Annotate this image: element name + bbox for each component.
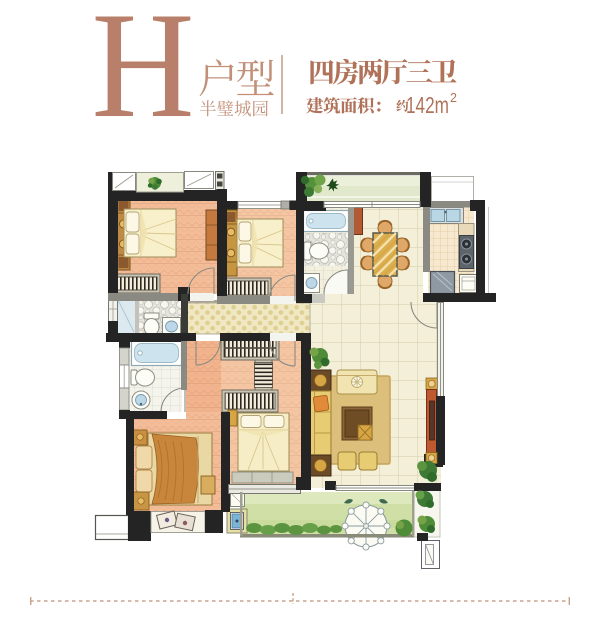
svg-text:2: 2: [450, 91, 457, 105]
svg-text:H: H: [92, 0, 195, 149]
svg-text:142m: 142m: [406, 92, 449, 118]
